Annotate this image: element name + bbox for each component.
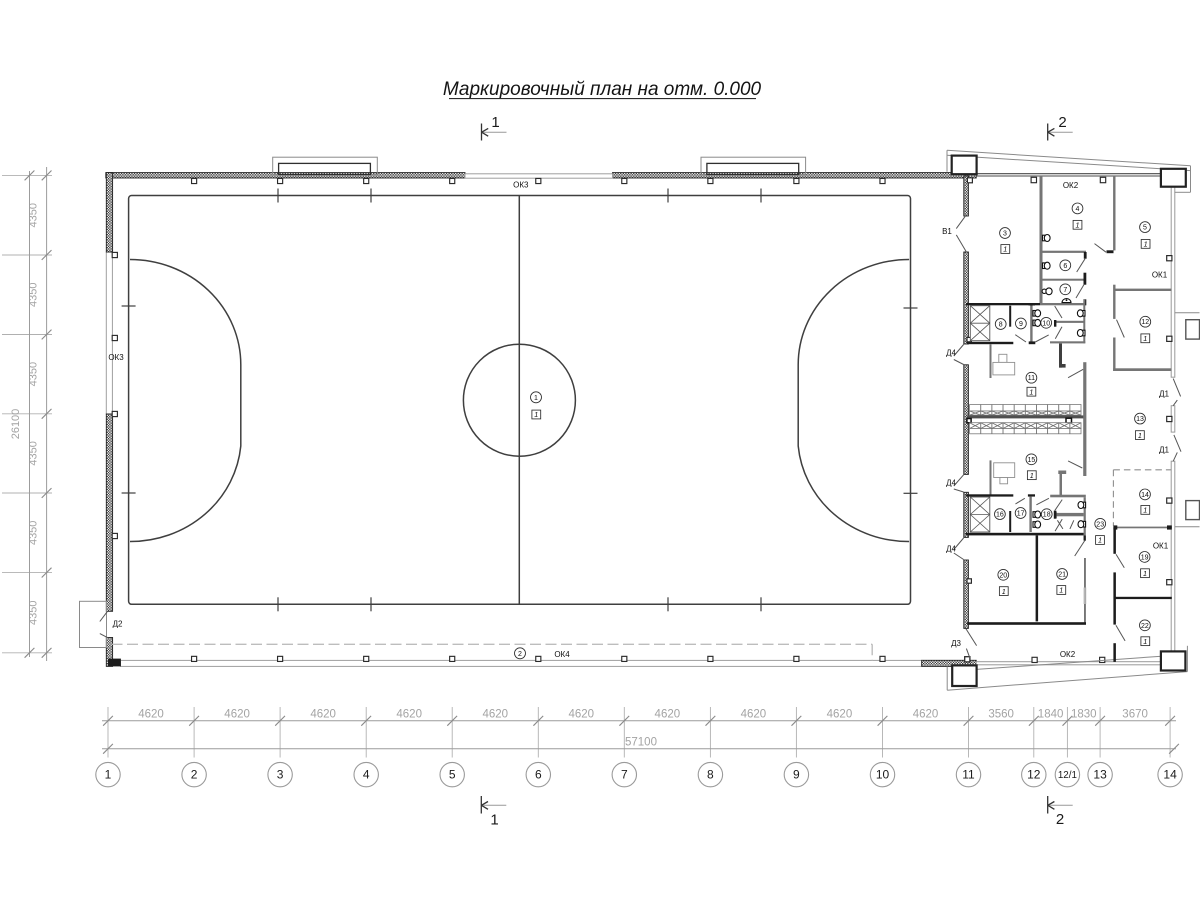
- svg-text:1: 1: [1076, 221, 1080, 230]
- svg-text:ОК3: ОК3: [108, 353, 124, 362]
- svg-text:3: 3: [277, 768, 284, 782]
- svg-text:13: 13: [1136, 416, 1144, 423]
- svg-text:Маркировочный план на отм. 0.0: Маркировочный план на отм. 0.000: [443, 79, 762, 100]
- svg-text:1: 1: [1143, 506, 1147, 515]
- svg-text:4620: 4620: [741, 709, 767, 721]
- svg-text:1: 1: [534, 410, 538, 419]
- svg-text:18: 18: [1043, 512, 1051, 519]
- svg-text:4620: 4620: [224, 709, 250, 721]
- svg-text:4620: 4620: [569, 709, 595, 721]
- svg-text:В1: В1: [942, 227, 952, 236]
- svg-text:Д4: Д4: [946, 545, 956, 554]
- svg-text:16: 16: [996, 512, 1004, 519]
- svg-text:1: 1: [1143, 569, 1147, 578]
- svg-text:10: 10: [876, 768, 890, 782]
- svg-text:7: 7: [1063, 287, 1067, 294]
- svg-text:1: 1: [1144, 240, 1148, 249]
- svg-text:15: 15: [1028, 457, 1036, 464]
- svg-text:4620: 4620: [396, 709, 422, 721]
- svg-text:22: 22: [1141, 623, 1149, 630]
- svg-text:10: 10: [1042, 320, 1050, 327]
- svg-text:4: 4: [1076, 206, 1080, 213]
- svg-text:4: 4: [363, 768, 370, 782]
- svg-text:4620: 4620: [138, 709, 164, 721]
- svg-text:12/1: 12/1: [1058, 770, 1077, 781]
- svg-text:2: 2: [1056, 811, 1064, 828]
- svg-text:1: 1: [1138, 431, 1142, 440]
- svg-text:4620: 4620: [655, 709, 681, 721]
- svg-text:1: 1: [1002, 587, 1006, 596]
- svg-text:3: 3: [1003, 231, 1007, 238]
- svg-text:1830: 1830: [1071, 709, 1097, 721]
- svg-text:9: 9: [793, 768, 800, 782]
- svg-text:12: 12: [1027, 768, 1041, 782]
- svg-text:ОК1: ОК1: [1153, 542, 1169, 551]
- svg-text:1: 1: [1059, 586, 1063, 595]
- svg-text:2: 2: [191, 768, 198, 782]
- svg-text:Д1: Д1: [1159, 446, 1170, 455]
- svg-text:Д4: Д4: [946, 479, 956, 488]
- svg-text:ОК1: ОК1: [1152, 271, 1168, 280]
- svg-text:19: 19: [1141, 554, 1149, 561]
- svg-text:57100: 57100: [625, 736, 657, 748]
- svg-text:6: 6: [535, 768, 542, 782]
- svg-text:1840: 1840: [1038, 709, 1064, 721]
- svg-text:ОК4: ОК4: [554, 650, 570, 659]
- svg-text:1: 1: [490, 812, 498, 829]
- svg-text:1: 1: [1003, 245, 1007, 254]
- svg-text:Д2: Д2: [113, 620, 123, 629]
- svg-text:1: 1: [1143, 637, 1147, 646]
- svg-text:5: 5: [1143, 225, 1147, 232]
- svg-text:3560: 3560: [988, 709, 1014, 721]
- svg-text:1: 1: [534, 395, 538, 402]
- svg-text:11: 11: [962, 768, 975, 782]
- svg-text:17: 17: [1017, 511, 1025, 518]
- svg-text:8: 8: [707, 768, 714, 782]
- svg-text:1: 1: [1143, 334, 1147, 343]
- svg-text:14: 14: [1163, 768, 1177, 782]
- svg-text:Д4: Д4: [946, 349, 956, 358]
- svg-text:1: 1: [105, 768, 112, 782]
- svg-text:14: 14: [1141, 492, 1149, 499]
- svg-text:1: 1: [1029, 387, 1033, 396]
- svg-text:26100: 26100: [10, 409, 22, 440]
- svg-text:11: 11: [1028, 375, 1035, 382]
- svg-text:7: 7: [621, 768, 628, 782]
- svg-text:1: 1: [1098, 536, 1102, 545]
- svg-text:Д3: Д3: [951, 639, 961, 648]
- svg-text:ОК2: ОК2: [1060, 650, 1076, 659]
- svg-text:Д1: Д1: [1159, 390, 1170, 399]
- svg-text:8: 8: [999, 322, 1003, 329]
- svg-text:1: 1: [491, 114, 499, 131]
- svg-text:23: 23: [1096, 521, 1104, 528]
- svg-text:2: 2: [1058, 114, 1066, 131]
- svg-text:1: 1: [1030, 471, 1034, 480]
- svg-text:5: 5: [449, 768, 456, 782]
- svg-text:20: 20: [999, 572, 1007, 579]
- svg-text:13: 13: [1093, 768, 1107, 782]
- svg-text:4620: 4620: [310, 709, 336, 721]
- svg-text:ОК3: ОК3: [513, 180, 529, 189]
- svg-text:4620: 4620: [482, 709, 508, 721]
- svg-text:12: 12: [1141, 319, 1149, 326]
- svg-text:6: 6: [1063, 263, 1067, 270]
- svg-text:9: 9: [1019, 321, 1023, 328]
- svg-text:2: 2: [518, 651, 522, 658]
- svg-text:3670: 3670: [1122, 709, 1148, 721]
- svg-text:4620: 4620: [913, 709, 939, 721]
- svg-text:4620: 4620: [827, 709, 853, 721]
- svg-text:21: 21: [1058, 572, 1066, 579]
- svg-text:ОК2: ОК2: [1063, 181, 1079, 190]
